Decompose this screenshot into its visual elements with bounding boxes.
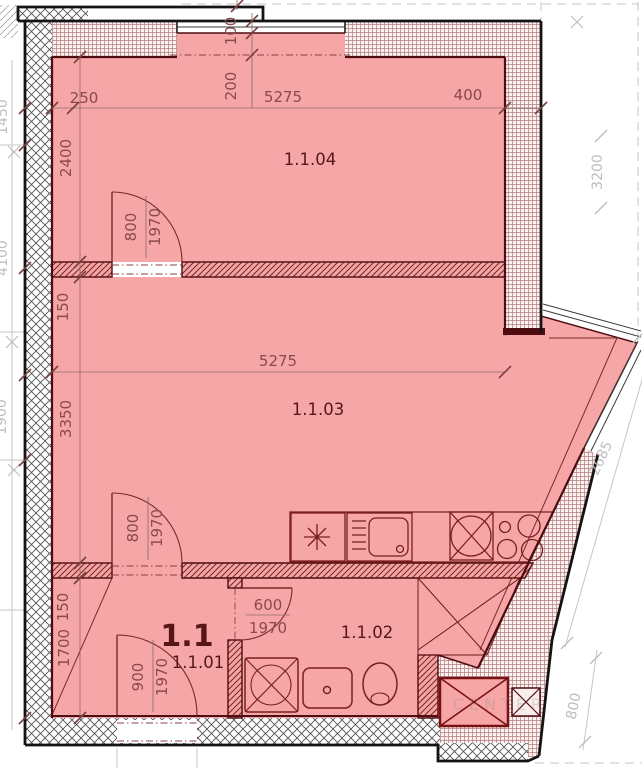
dim-250: 250 bbox=[70, 89, 99, 107]
wall-bottom bbox=[25, 718, 440, 745]
dim-door-bath-h: 1970 bbox=[249, 619, 287, 637]
dim-150-lower: 150 bbox=[54, 593, 72, 622]
room-label-1-1-01: 1.1.01 bbox=[172, 653, 224, 672]
dim-door-entry-h: 1970 bbox=[153, 658, 171, 696]
room-bedroom-fill bbox=[52, 33, 505, 262]
dim-200: 200 bbox=[222, 72, 240, 101]
wall-stub-hatched bbox=[18, 7, 88, 21]
wall-top-left bbox=[52, 21, 177, 57]
room-label-1-1-03: 1.1.03 bbox=[292, 400, 344, 419]
wall-bottom-step bbox=[438, 743, 528, 761]
dim-150-upper: 150 bbox=[54, 293, 72, 322]
top-left-diag-sliver bbox=[0, 5, 18, 38]
dim-door-living-h: 1970 bbox=[148, 509, 166, 547]
dim-door-living-w: 800 bbox=[124, 514, 142, 543]
dim-left-b: 4100 bbox=[0, 240, 11, 276]
room-label-1-1-04: 1.1.04 bbox=[284, 150, 336, 169]
dim-door-bedroom-h: 1970 bbox=[146, 208, 164, 246]
wall-right-cap bbox=[503, 328, 545, 335]
unit-label: 1.1 bbox=[160, 619, 213, 654]
dim-5275-top: 5275 bbox=[264, 88, 302, 106]
dim-100: 100 bbox=[222, 17, 240, 46]
dim-left-c: 1900 bbox=[0, 399, 10, 435]
dim-door-entry-w: 900 bbox=[129, 663, 147, 692]
room-label-1-1-02: 1.1.02 bbox=[341, 623, 393, 642]
watermark-text: CENTER bbox=[453, 695, 547, 714]
dim-400: 400 bbox=[454, 86, 483, 104]
dim-door-bedroom-w: 800 bbox=[122, 213, 140, 242]
dim-2400: 2400 bbox=[57, 139, 75, 177]
dim-door-bath-w: 600 bbox=[254, 596, 283, 614]
dim-left-a: 1450 bbox=[0, 99, 11, 135]
floor-plan-canvas: 250 5275 400 200 100 2400 150 3350 150 1… bbox=[0, 0, 642, 768]
wall-right bbox=[505, 21, 541, 333]
dim-3350: 3350 bbox=[57, 400, 75, 438]
floor-plan-page: 250 5275 400 200 100 2400 150 3350 150 1… bbox=[0, 0, 642, 768]
dim-3200: 3200 bbox=[590, 154, 606, 190]
wall-left bbox=[25, 21, 52, 745]
dim-5275-mid: 5275 bbox=[259, 352, 297, 370]
dim-1700: 1700 bbox=[55, 629, 73, 667]
